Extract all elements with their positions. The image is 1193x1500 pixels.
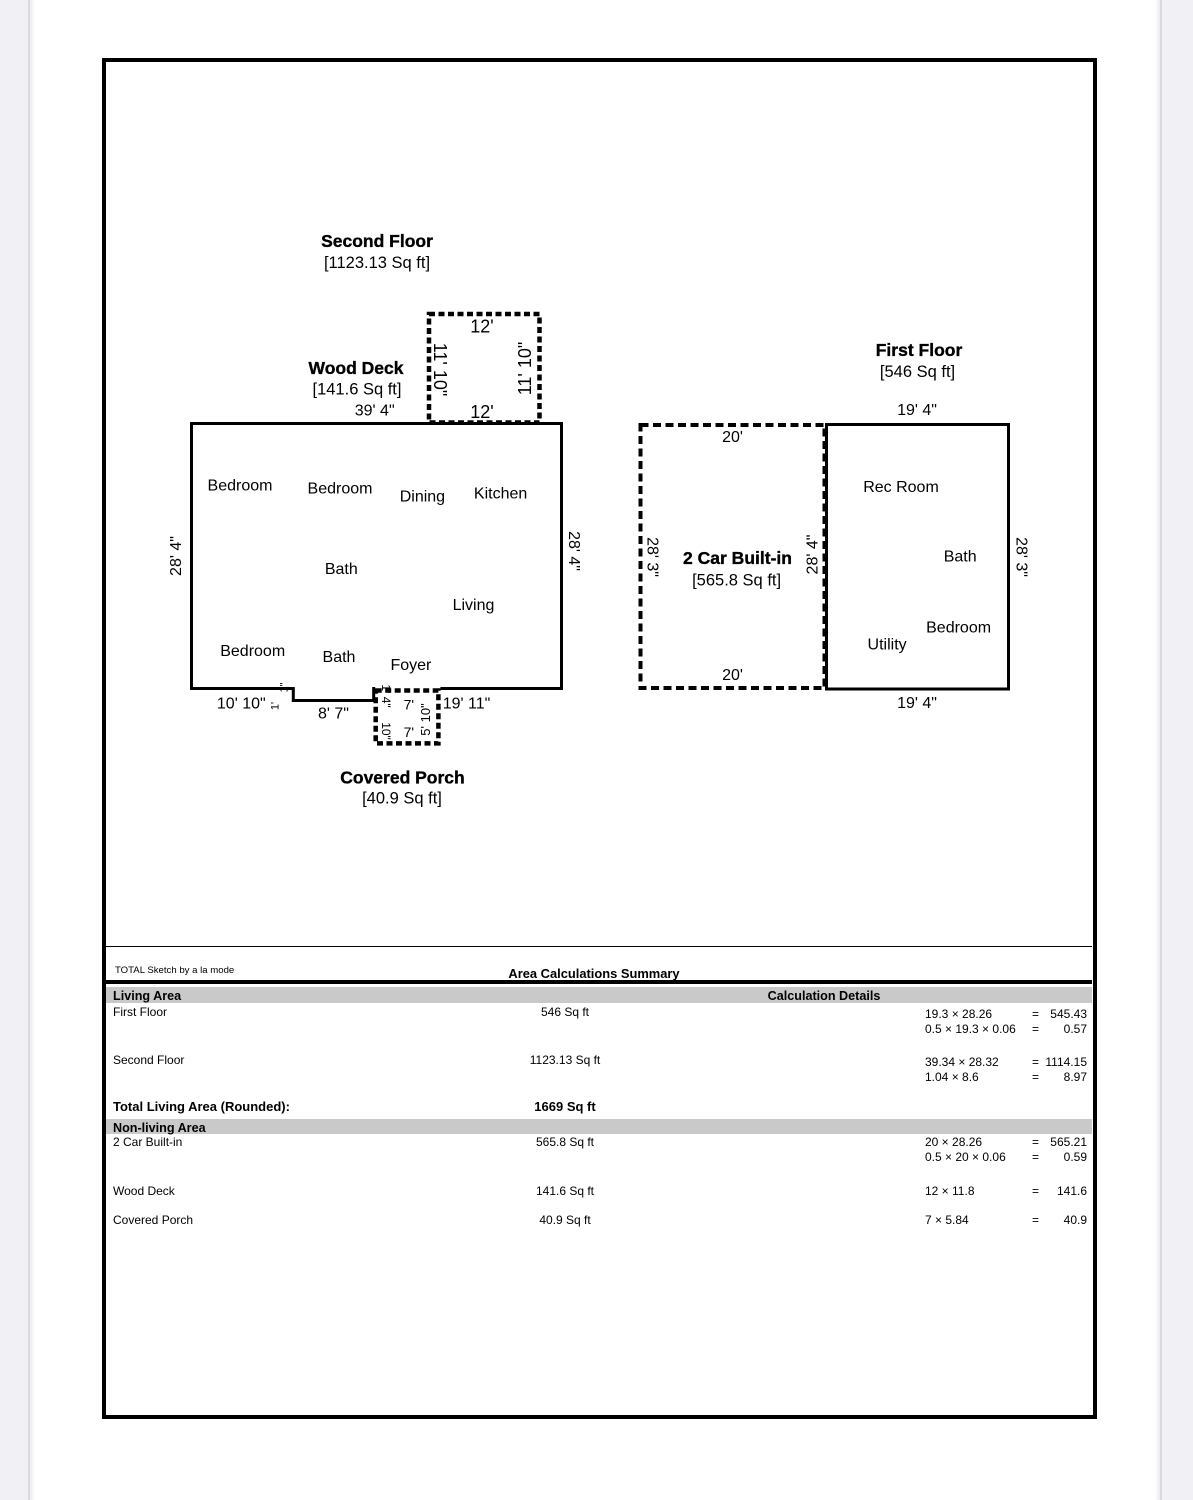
- svg-text:Dining: Dining: [400, 489, 445, 506]
- svg-text:8' 7": 8' 7": [318, 705, 349, 722]
- svg-text:10": 10": [379, 722, 393, 740]
- svg-text:Kitchen: Kitchen: [474, 486, 527, 503]
- svg-text:2 Car Built-in: 2 Car Built-in: [683, 548, 792, 568]
- svg-text:28' 4": 28' 4": [805, 535, 822, 575]
- svg-text:5' 10": 5' 10": [418, 703, 433, 736]
- svg-text:[1123.13 Sq ft]: [1123.13 Sq ft]: [324, 254, 430, 272]
- svg-text:[141.6 Sq ft]: [141.6 Sq ft]: [313, 381, 402, 399]
- svg-text:1' 4": 1' 4": [379, 684, 393, 707]
- svg-text:1": 1": [279, 682, 291, 692]
- svg-text:7': 7': [404, 697, 414, 713]
- svg-text:10' 10": 10' 10": [217, 696, 266, 713]
- svg-text:Bath: Bath: [323, 649, 356, 666]
- svg-text:19' 11": 19' 11": [443, 696, 491, 713]
- svg-text:28' 3": 28' 3": [1013, 537, 1030, 577]
- svg-text:Covered Porch: Covered Porch: [340, 768, 464, 788]
- svg-text:[40.9 Sq ft]: [40.9 Sq ft]: [362, 790, 442, 808]
- svg-text:28' 3": 28' 3": [644, 537, 661, 577]
- svg-text:20': 20': [722, 429, 743, 446]
- svg-text:Bedroom: Bedroom: [308, 481, 373, 498]
- svg-text:Bath: Bath: [944, 548, 977, 565]
- svg-text:1': 1': [270, 702, 282, 710]
- svg-text:20': 20': [722, 667, 743, 684]
- svg-text:[546 Sq ft]: [546 Sq ft]: [880, 363, 955, 381]
- svg-text:7': 7': [404, 724, 414, 740]
- svg-text:Rec Room: Rec Room: [863, 479, 939, 496]
- svg-text:11' 10": 11' 10": [430, 343, 450, 397]
- svg-text:[565.8 Sq ft]: [565.8 Sq ft]: [692, 571, 781, 589]
- svg-text:First Floor: First Floor: [876, 340, 963, 360]
- svg-text:19' 4": 19' 4": [897, 402, 937, 419]
- svg-text:Bedroom: Bedroom: [220, 643, 285, 660]
- svg-text:28' 4": 28' 4": [168, 536, 185, 576]
- svg-text:Bedroom: Bedroom: [926, 620, 991, 637]
- svg-text:Second Floor: Second Floor: [321, 231, 433, 251]
- svg-text:11' 10": 11' 10": [515, 342, 535, 396]
- svg-text:39' 4": 39' 4": [355, 403, 395, 420]
- svg-text:Wood Deck: Wood Deck: [309, 358, 404, 378]
- svg-text:Bath: Bath: [325, 561, 358, 578]
- svg-text:19' 4": 19' 4": [897, 695, 937, 712]
- svg-text:Living: Living: [453, 597, 495, 614]
- svg-text:12': 12': [470, 317, 493, 337]
- svg-text:12': 12': [470, 402, 493, 422]
- svg-text:28' 4": 28' 4": [565, 531, 582, 571]
- svg-text:Foyer: Foyer: [390, 657, 432, 674]
- svg-text:Bedroom: Bedroom: [208, 478, 273, 495]
- svg-text:Utility: Utility: [868, 636, 907, 653]
